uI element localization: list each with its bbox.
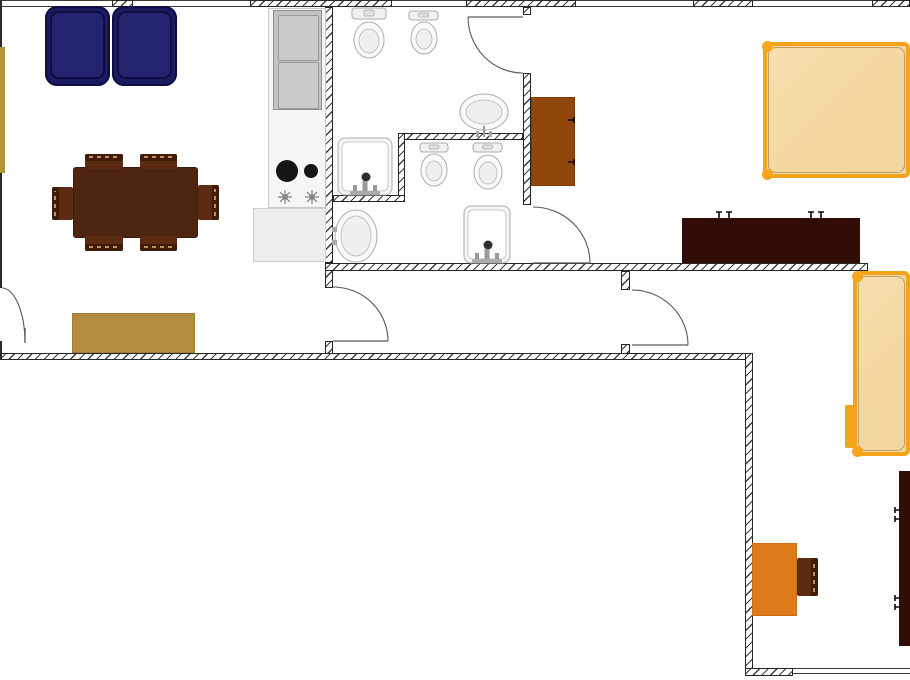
door-bathroom-2[interactable] <box>533 207 590 263</box>
fixtures-layer <box>0 0 910 680</box>
dresser-2-handles[interactable] <box>895 507 901 610</box>
floor-plan <box>0 0 910 680</box>
stove-spark-1[interactable] <box>278 190 292 204</box>
stove-burner-small[interactable] <box>304 164 318 178</box>
stove-spark-2[interactable] <box>305 190 319 204</box>
door-hall-1[interactable] <box>333 287 388 341</box>
sink-pedestal-1[interactable] <box>460 94 508 137</box>
door-bathroom-1[interactable] <box>468 17 523 73</box>
sink-basin-2[interactable] <box>464 206 510 263</box>
sink-basin-1[interactable] <box>338 138 392 195</box>
cabinet-handles[interactable] <box>568 117 574 165</box>
sink-pedestal-2[interactable] <box>332 210 377 262</box>
toilet-2[interactable] <box>409 11 438 54</box>
dresser-1-handles[interactable] <box>716 212 824 218</box>
toilet-3[interactable] <box>420 143 448 186</box>
door-living-left[interactable] <box>2 288 25 343</box>
stove-burner-large[interactable] <box>276 160 298 182</box>
toilet-4[interactable] <box>473 143 502 189</box>
toilet-1[interactable] <box>352 8 386 58</box>
door-hall-2[interactable] <box>632 290 688 345</box>
